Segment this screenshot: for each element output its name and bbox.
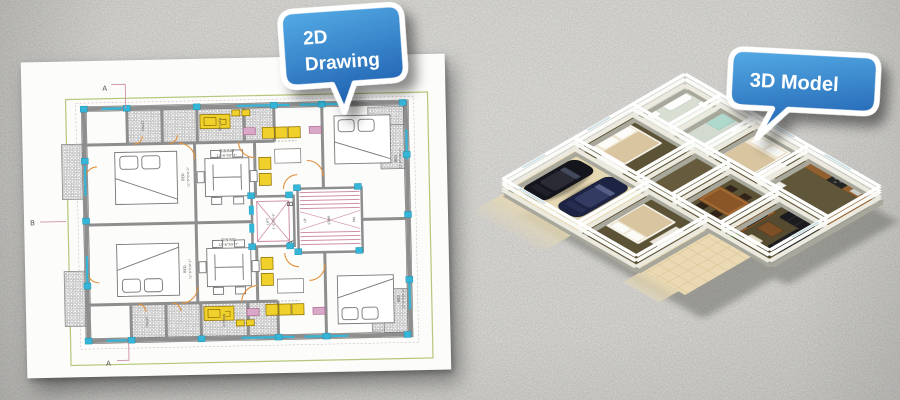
bed-tl-label: BED (181, 173, 185, 181)
section-b-left: B (30, 219, 35, 227)
kitchen-bottom-label: KITCHEN (222, 314, 226, 327)
bubble-3d-label: 3D Model (749, 69, 839, 96)
section-a-bottom: A (106, 360, 111, 368)
dining-top-label: DINING (219, 148, 234, 153)
bed-bottom-right (337, 275, 394, 324)
bed-br-dims: 12'-6"X10'-2" (401, 288, 405, 309)
bubble-2d-line1: 2D (302, 27, 328, 50)
stair-dn-label: DN (352, 216, 356, 222)
section-a-top: A (102, 85, 107, 93)
bed-tr-label: BED (394, 155, 398, 163)
toilet-top-label: TOILET (141, 120, 145, 132)
bed-bl-dims: 12'-6"X10'-2" (188, 258, 192, 279)
dining-bottom-label: DINING (221, 237, 236, 242)
bubble-3d-model: 3D Model (728, 48, 900, 168)
dining-bottom-dims: 12'-6"X9'-7" (218, 242, 239, 246)
stair-up-label: UP (303, 218, 307, 222)
toilet-bottom-label: TOILET (145, 316, 149, 328)
dining-top-dims: 12'-6"X9'-7" (216, 153, 237, 157)
stair-label: STAIR (327, 215, 331, 225)
bed-bl-label: BED (183, 265, 187, 273)
bed-tr-dims: 12'-6"X10'-2" (398, 148, 402, 169)
kitchen-top-label: KITCHEN (218, 118, 222, 131)
sofa-set-top (258, 127, 301, 186)
lift-dims: 4'-6"X4'-6" (271, 212, 275, 229)
bubble-2d-drawing: 2D Drawing (282, 4, 432, 132)
bed-tl-dims: 12'-6"X10'-2" (186, 166, 190, 187)
bubble-3d-shape (727, 48, 879, 144)
bed-top-left (115, 151, 178, 204)
bed-br-label: BED (397, 295, 401, 303)
sofa-set-bottom (261, 257, 304, 316)
staircase: UP DN STAIR B A (285, 187, 362, 253)
bed-bottom-left (117, 243, 180, 296)
stair-section-b: B (286, 201, 295, 207)
scene: LIFT 4'-6"X4'-6" UP DN STAIR B A (0, 0, 900, 400)
lift-label: LIFT (266, 217, 270, 225)
